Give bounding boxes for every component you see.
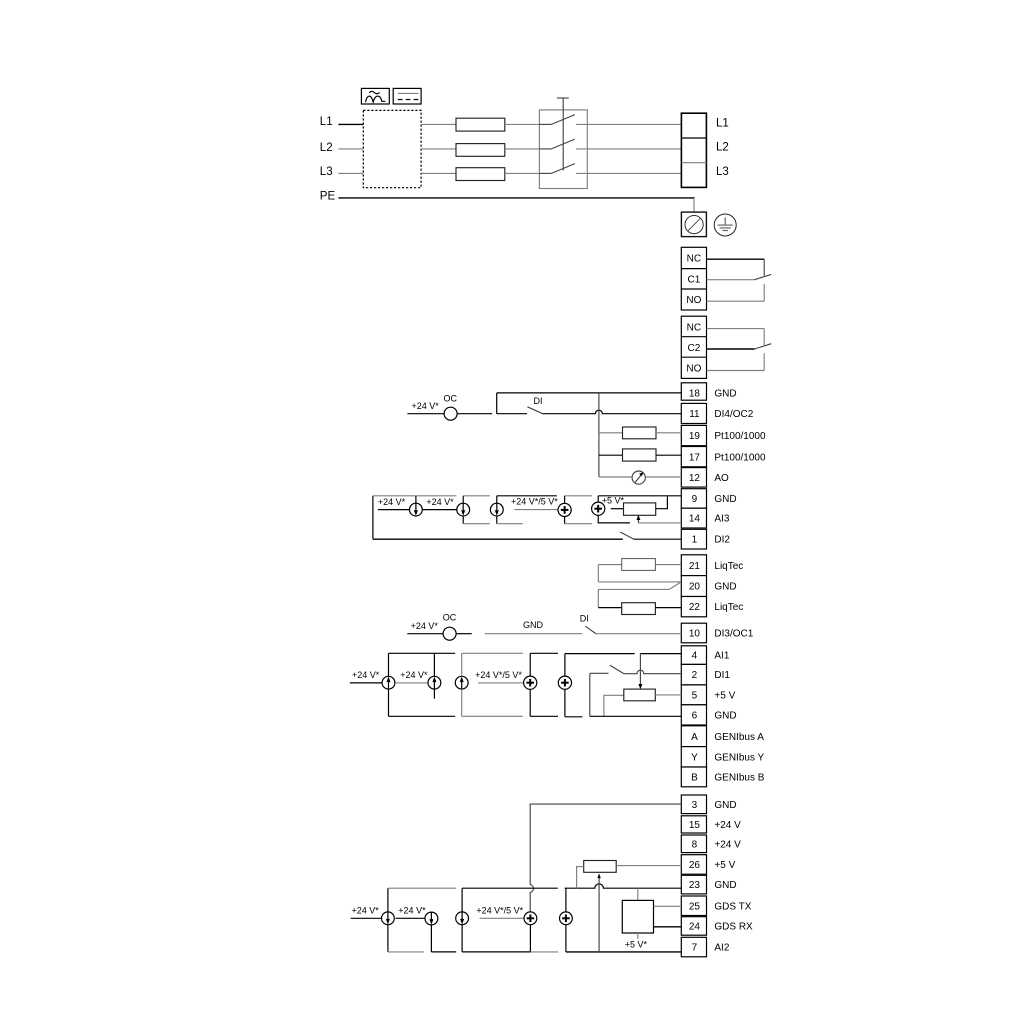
- svg-text:14: 14: [689, 514, 701, 525]
- svg-text:10: 10: [689, 629, 701, 640]
- svg-text:GND: GND: [714, 494, 736, 505]
- svg-text:11: 11: [689, 409, 700, 420]
- svg-text:12: 12: [689, 473, 701, 484]
- svg-text:+24 V*: +24 V*: [400, 670, 428, 680]
- svg-text:C2: C2: [688, 343, 701, 354]
- svg-text:AO: AO: [714, 473, 729, 484]
- svg-text:L2: L2: [716, 141, 729, 153]
- svg-text:+5 V: +5 V: [714, 690, 735, 701]
- svg-text:6: 6: [692, 711, 698, 722]
- svg-text:L3: L3: [320, 166, 333, 178]
- svg-text:PE: PE: [320, 191, 336, 203]
- svg-text:21: 21: [689, 561, 701, 572]
- svg-text:+5 V*: +5 V*: [625, 940, 648, 950]
- svg-text:+24 V*: +24 V*: [398, 906, 426, 916]
- svg-text:GENIbus A: GENIbus A: [714, 732, 764, 743]
- svg-text:+24 V*/5 V*: +24 V*/5 V*: [511, 497, 558, 507]
- svg-text:DI4/OC2: DI4/OC2: [714, 409, 753, 420]
- svg-text:A: A: [691, 732, 698, 743]
- svg-text:20: 20: [689, 582, 701, 593]
- svg-text:L3: L3: [716, 166, 729, 178]
- svg-text:DI: DI: [580, 614, 589, 624]
- svg-text:23: 23: [689, 880, 701, 891]
- svg-text:26: 26: [689, 860, 701, 871]
- svg-text:+24 V: +24 V: [714, 839, 741, 850]
- svg-text:Pt100/1000: Pt100/1000: [714, 431, 766, 442]
- svg-text:19: 19: [689, 431, 701, 442]
- svg-text:3: 3: [692, 800, 698, 811]
- svg-text:+24 V*: +24 V*: [412, 401, 440, 411]
- svg-text:GDS TX: GDS TX: [714, 901, 751, 912]
- svg-text:AI3: AI3: [714, 514, 729, 525]
- svg-text:GENIbus Y: GENIbus Y: [714, 752, 764, 763]
- svg-text:4: 4: [692, 651, 698, 662]
- svg-text:9: 9: [692, 494, 698, 505]
- svg-text:GDS RX: GDS RX: [714, 922, 753, 933]
- svg-text:+24 V*: +24 V*: [378, 497, 406, 507]
- svg-text:DI3/OC1: DI3/OC1: [714, 629, 753, 640]
- svg-text:LiqTec: LiqTec: [714, 561, 743, 572]
- svg-text:OC: OC: [443, 613, 457, 623]
- svg-text:+24 V*/5 V*: +24 V*/5 V*: [475, 670, 522, 680]
- svg-text:GND: GND: [523, 620, 544, 630]
- svg-text:GND: GND: [714, 582, 736, 593]
- svg-text:15: 15: [689, 820, 701, 831]
- svg-text:GENIbus B: GENIbus B: [714, 772, 764, 783]
- svg-text:OC: OC: [444, 394, 458, 404]
- svg-text:+24 V*: +24 V*: [352, 670, 380, 680]
- svg-text:GND: GND: [714, 389, 736, 400]
- svg-text:+24 V*: +24 V*: [411, 621, 439, 631]
- svg-text:Y: Y: [691, 752, 698, 763]
- svg-text:+24 V*: +24 V*: [352, 906, 380, 916]
- svg-text:+24 V*: +24 V*: [426, 497, 454, 507]
- svg-text:LiqTec: LiqTec: [714, 602, 743, 613]
- svg-text:AI1: AI1: [714, 651, 729, 662]
- svg-text:GND: GND: [714, 880, 736, 891]
- svg-text:7: 7: [692, 943, 698, 954]
- svg-text:GND: GND: [714, 800, 736, 811]
- svg-text:+24 V: +24 V: [714, 820, 741, 831]
- svg-text:NO: NO: [686, 295, 701, 306]
- svg-text:L1: L1: [716, 118, 729, 130]
- svg-text:18: 18: [689, 389, 701, 400]
- svg-text:DI: DI: [534, 396, 543, 406]
- svg-text:1: 1: [692, 535, 698, 546]
- svg-text:+24 V*/5 V*: +24 V*/5 V*: [476, 906, 523, 916]
- svg-text:8: 8: [692, 839, 698, 850]
- svg-text:GND: GND: [714, 711, 736, 722]
- svg-text:C1: C1: [688, 274, 701, 285]
- svg-text:Pt100/1000: Pt100/1000: [714, 452, 766, 463]
- svg-text:+5 V: +5 V: [714, 860, 735, 871]
- svg-text:25: 25: [689, 901, 701, 912]
- svg-text:NC: NC: [687, 254, 701, 265]
- svg-text:L2: L2: [320, 142, 333, 154]
- svg-text:2: 2: [692, 670, 698, 681]
- svg-text:24: 24: [689, 922, 701, 933]
- svg-text:+5 V*: +5 V*: [602, 496, 625, 506]
- svg-text:L1: L1: [320, 116, 333, 128]
- svg-text:DI1: DI1: [714, 670, 730, 681]
- svg-text:5: 5: [692, 690, 698, 701]
- svg-text:NO: NO: [686, 364, 701, 375]
- svg-text:NC: NC: [687, 322, 701, 333]
- svg-text:22: 22: [689, 602, 701, 613]
- svg-text:B: B: [691, 772, 698, 783]
- svg-text:AI2: AI2: [714, 943, 729, 954]
- svg-text:17: 17: [689, 452, 701, 463]
- svg-text:DI2: DI2: [714, 535, 730, 546]
